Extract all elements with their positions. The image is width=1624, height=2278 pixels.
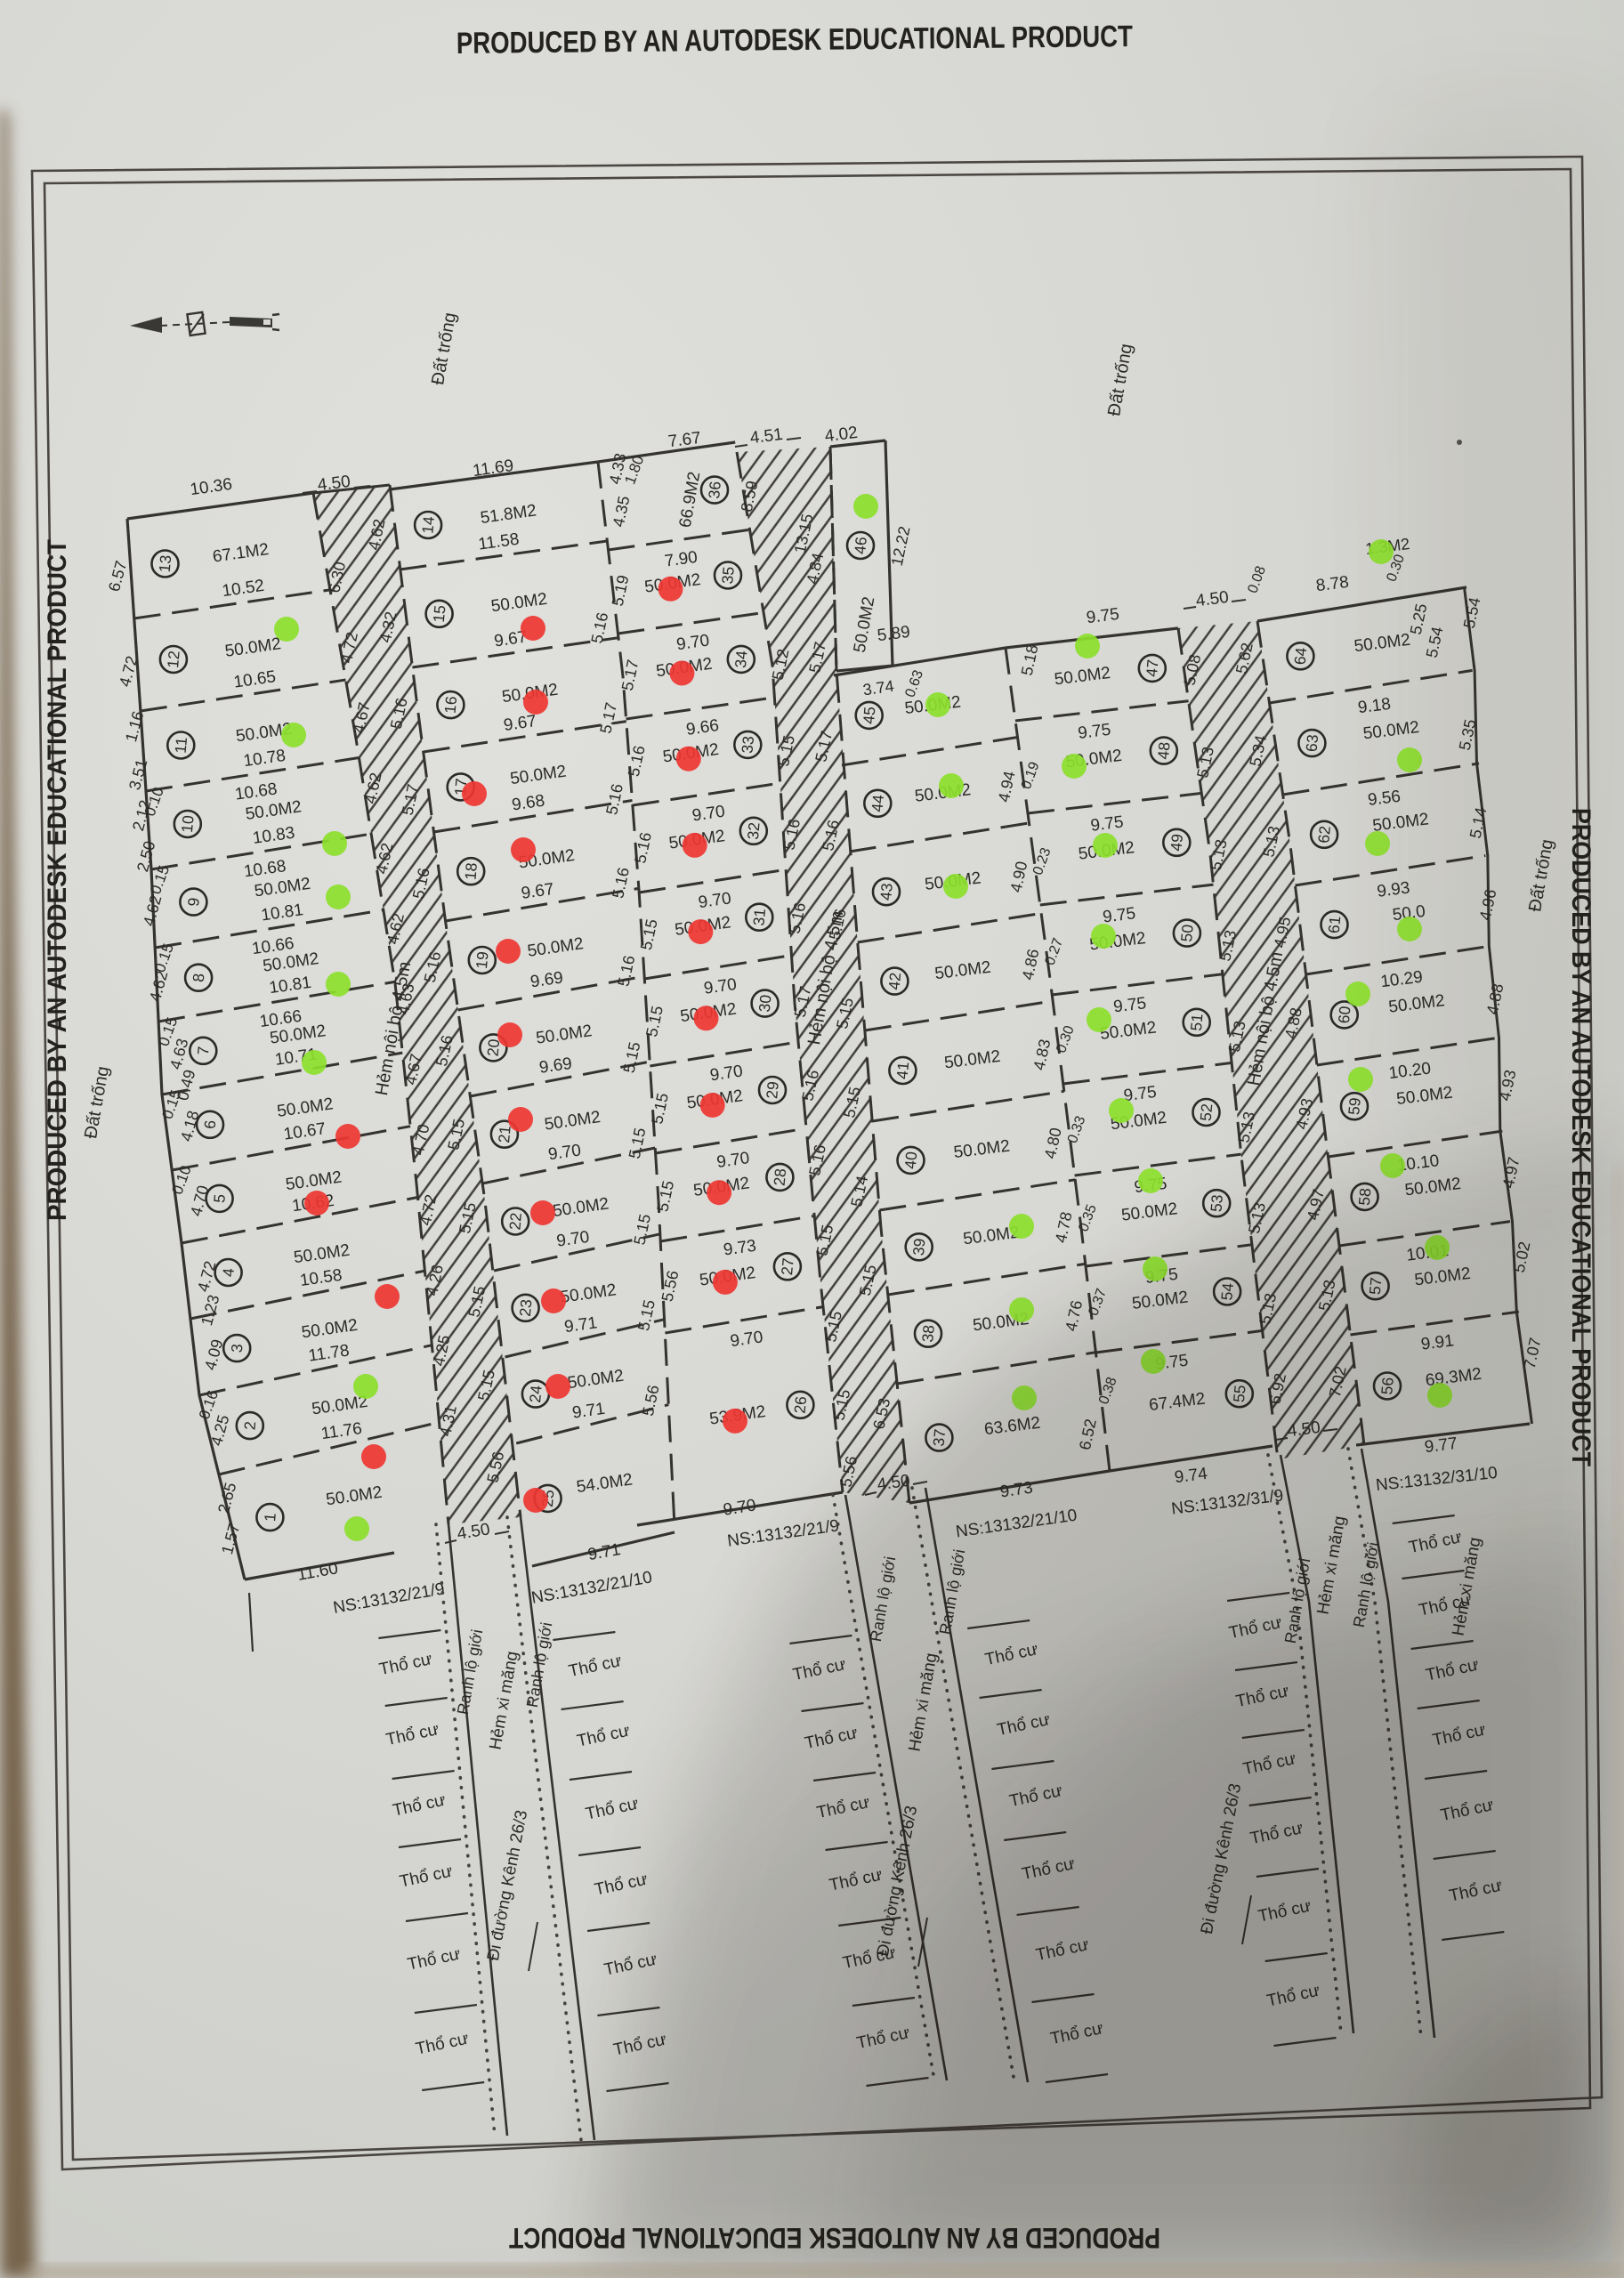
svg-text:18: 18 xyxy=(461,862,481,881)
svg-text:51: 51 xyxy=(1187,1013,1207,1031)
svg-text:4.51: 4.51 xyxy=(749,425,784,448)
svg-text:61: 61 xyxy=(1325,916,1345,934)
svg-text:29: 29 xyxy=(763,1080,782,1099)
svg-text:15: 15 xyxy=(430,604,449,623)
svg-text:3: 3 xyxy=(228,1343,246,1353)
svg-text:63: 63 xyxy=(1303,734,1322,753)
svg-text:22: 22 xyxy=(505,1212,525,1231)
svg-text:34: 34 xyxy=(731,650,751,668)
svg-text:11: 11 xyxy=(172,737,191,755)
svg-text:7: 7 xyxy=(194,1046,213,1055)
svg-text:5.89: 5.89 xyxy=(877,623,911,645)
svg-text:14: 14 xyxy=(418,515,438,534)
svg-text:52: 52 xyxy=(1197,1103,1216,1121)
svg-text:45: 45 xyxy=(860,706,879,724)
svg-text:43: 43 xyxy=(877,883,896,901)
svg-text:19: 19 xyxy=(473,950,492,969)
svg-text:35: 35 xyxy=(718,566,738,585)
svg-text:8.78: 8.78 xyxy=(1315,573,1350,595)
svg-text:9.18: 9.18 xyxy=(1357,695,1392,717)
svg-text:21: 21 xyxy=(495,1125,514,1143)
svg-text:32: 32 xyxy=(744,821,764,840)
svg-text:50: 50 xyxy=(1177,924,1197,942)
svg-text:1: 1 xyxy=(261,1512,279,1522)
svg-text:64: 64 xyxy=(1291,646,1311,665)
svg-text:42: 42 xyxy=(885,972,905,990)
svg-text:39: 39 xyxy=(909,1238,929,1256)
svg-text:38: 38 xyxy=(918,1324,938,1343)
svg-text:33: 33 xyxy=(738,735,757,754)
svg-text:7.67: 7.67 xyxy=(667,429,702,451)
svg-text:10: 10 xyxy=(178,814,198,833)
svg-text:2: 2 xyxy=(240,1420,259,1430)
svg-text:9: 9 xyxy=(184,897,203,907)
svg-text:28: 28 xyxy=(771,1167,790,1186)
svg-text:59: 59 xyxy=(1345,1097,1364,1116)
svg-text:9.75: 9.75 xyxy=(1089,812,1124,835)
svg-text:9.75: 9.75 xyxy=(1086,605,1120,627)
svg-text:44: 44 xyxy=(868,794,887,812)
svg-text:48: 48 xyxy=(1154,741,1174,760)
svg-text:9.75: 9.75 xyxy=(1102,904,1136,926)
svg-text:23: 23 xyxy=(516,1298,536,1317)
svg-text:26: 26 xyxy=(791,1395,811,1414)
svg-text:46: 46 xyxy=(851,536,870,554)
svg-text:53: 53 xyxy=(1207,1194,1226,1213)
svg-text:41: 41 xyxy=(893,1061,913,1079)
svg-text:PRODUCED BY AN AUTODESK EDUCAT: PRODUCED BY AN AUTODESK EDUCATIONAL PROD… xyxy=(456,20,1134,61)
svg-text:62: 62 xyxy=(1314,825,1334,844)
svg-text:PRODUCED BY AN AUTODESK EDUCAT: PRODUCED BY AN AUTODESK EDUCATIONAL PROD… xyxy=(43,539,72,1221)
svg-text:30: 30 xyxy=(755,994,775,1013)
svg-text:13: 13 xyxy=(156,554,175,573)
svg-text:4.50: 4.50 xyxy=(1195,588,1230,610)
svg-text:5: 5 xyxy=(210,1193,229,1203)
svg-text:31: 31 xyxy=(749,908,769,926)
svg-text:36: 36 xyxy=(705,481,724,499)
svg-text:24: 24 xyxy=(526,1385,545,1403)
svg-text:4.50: 4.50 xyxy=(317,473,351,495)
svg-text:60: 60 xyxy=(1335,1006,1354,1024)
svg-text:4.02: 4.02 xyxy=(824,424,859,446)
svg-text:9.75: 9.75 xyxy=(1077,721,1111,743)
svg-text:49: 49 xyxy=(1167,833,1186,852)
svg-text:12: 12 xyxy=(164,650,183,668)
svg-text:8: 8 xyxy=(190,973,208,982)
svg-text:4: 4 xyxy=(219,1267,238,1278)
svg-text:6: 6 xyxy=(201,1119,220,1129)
svg-text:47: 47 xyxy=(1143,658,1162,677)
svg-text:16: 16 xyxy=(441,696,461,715)
svg-text:9.75: 9.75 xyxy=(1112,994,1147,1016)
svg-text:40: 40 xyxy=(901,1151,921,1169)
svg-text:27: 27 xyxy=(778,1257,797,1276)
